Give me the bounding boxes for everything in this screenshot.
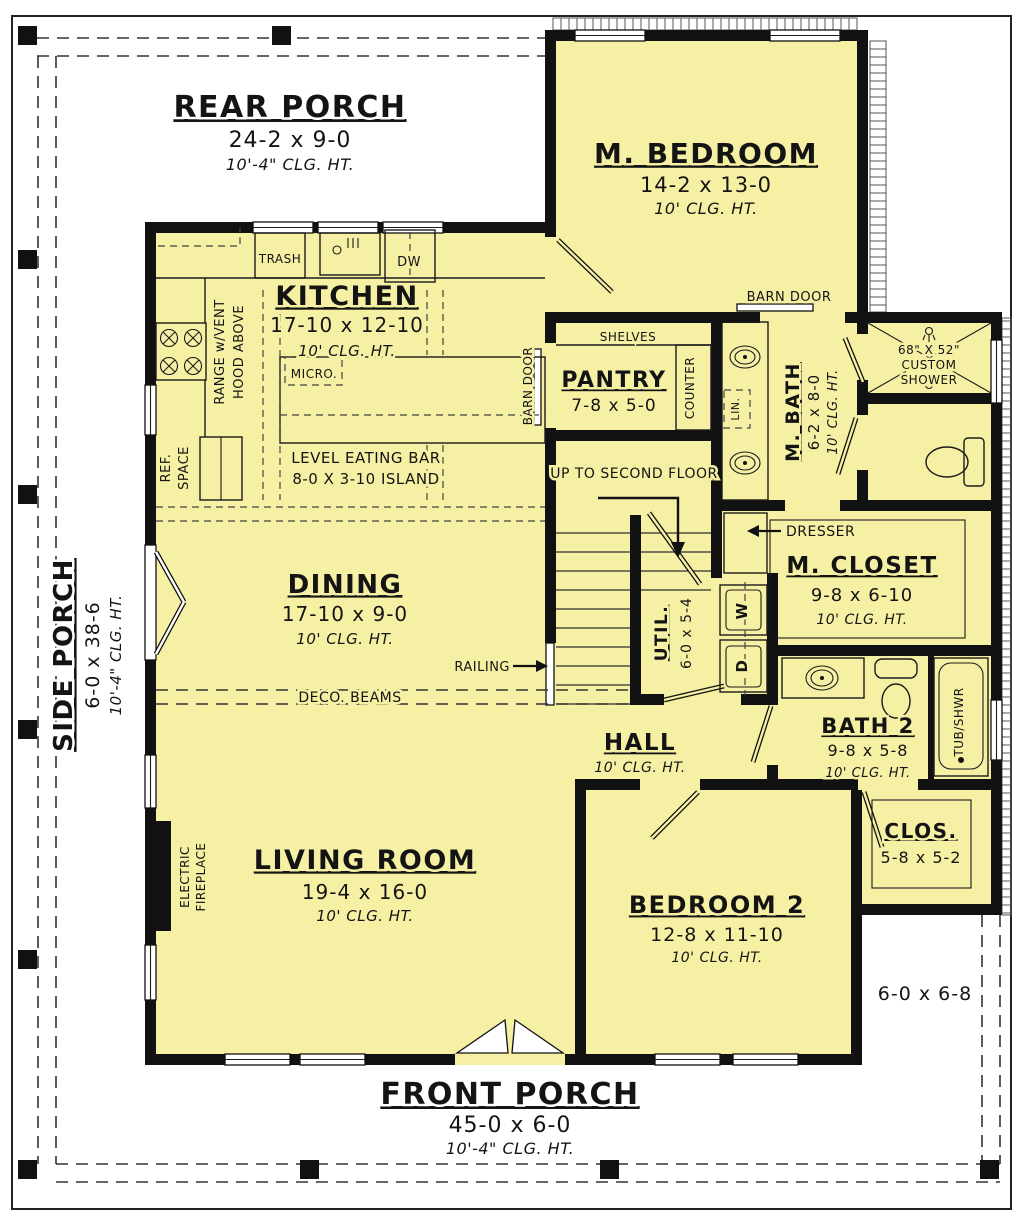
window xyxy=(145,945,156,1000)
room-clg-living: 10' CLG. HT. xyxy=(316,907,413,925)
barn-door-slab xyxy=(737,304,813,311)
label-shelves: SHELVES xyxy=(600,330,657,344)
label-island: 8-0 X 3-10 ISLAND xyxy=(292,470,439,488)
room-label-hall: HALL xyxy=(604,730,676,756)
room-dims-dining: 17-10 x 9-0 xyxy=(282,602,408,626)
label-tub: TUB/SHWR xyxy=(952,687,966,757)
room-dims-pantry: 7-8 x 5-0 xyxy=(571,396,656,416)
fireplace-notch xyxy=(156,931,171,940)
window xyxy=(383,222,443,233)
vanity-sink xyxy=(806,666,838,690)
siding-strip xyxy=(1002,318,1011,915)
label-shower1: 68" X 52" xyxy=(898,343,960,357)
label-counter: COUNTER xyxy=(683,357,697,419)
porch-post xyxy=(18,720,37,739)
barn-door-slab xyxy=(534,349,541,425)
room-dims-rear-porch: 24-2 x 9-0 xyxy=(229,128,352,153)
porch-post xyxy=(18,26,37,45)
label-range2: HOOD ABOVE xyxy=(232,305,247,399)
room-label-kitchen: KITCHEN xyxy=(275,281,418,312)
nook-dims: 6-0 x 6-8 xyxy=(878,983,972,1005)
room-clg-m-closet: 10' CLG. HT. xyxy=(816,612,907,628)
room-dims-bath2: 9-8 x 5-8 xyxy=(828,741,909,760)
label-shower2: CUSTOM xyxy=(902,358,957,372)
label-ref1: REF. xyxy=(159,454,174,483)
porch-post xyxy=(18,485,37,504)
label-micro: MICRO. xyxy=(291,367,337,381)
window xyxy=(225,1054,290,1065)
window xyxy=(991,340,1002,403)
room-dims-living: 19-4 x 16-0 xyxy=(302,880,428,904)
side-door-opening xyxy=(145,545,156,660)
stair-treads xyxy=(556,515,630,705)
room-clg-side-porch: 10'-4" CLG. HT. xyxy=(107,595,125,716)
label-trash: TRASH xyxy=(258,252,302,266)
room-label-pantry: PANTRY xyxy=(561,368,666,393)
room-dims-bedroom2: 12-8 x 11-10 xyxy=(650,924,784,946)
room-label-clos2: CLOS. xyxy=(884,819,957,843)
porch-post xyxy=(600,1160,619,1179)
room-clg-dining: 10' CLG. HT. xyxy=(296,630,393,648)
room-dims-clos2: 5-8 x 5-2 xyxy=(881,848,962,867)
window xyxy=(991,700,1002,760)
window xyxy=(655,1054,720,1065)
label-dryer: D xyxy=(733,660,751,673)
label-eating-bar: LEVEL EATING BAR xyxy=(291,449,440,467)
floor-plan-svg: REAR PORCH 24-2 x 9-0 10'-4" CLG. HT. FR… xyxy=(0,0,1024,1216)
room-clg-m-bedroom: 10' CLG. HT. xyxy=(654,199,758,218)
label-fireplace2: FIREPLACE xyxy=(194,842,208,911)
room-dims-m-closet: 9-8 x 6-10 xyxy=(811,585,913,606)
window xyxy=(145,385,156,435)
room-label-rear-porch: REAR PORCH xyxy=(173,90,406,125)
window xyxy=(253,222,313,233)
room-label-side-porch: SIDE PORCH xyxy=(49,558,79,752)
label-dw: DW xyxy=(397,255,421,270)
label-railing: RAILING xyxy=(454,660,510,675)
label-stairs: UP TO SECOND FLOOR xyxy=(550,466,718,482)
room-dims-m-bedroom: 14-2 x 13-0 xyxy=(640,173,772,197)
room-clg-m-bath: 10' CLG. HT. xyxy=(826,369,841,454)
room-clg-bath2: 10' CLG. HT. xyxy=(825,766,910,781)
label-fireplace1: ELECTRIC xyxy=(178,846,192,908)
porch-post xyxy=(18,250,37,269)
room-label-dining: DINING xyxy=(288,570,403,600)
room-dims-side-porch: 6-0 x 38-6 xyxy=(82,601,104,708)
room-label-m-bedroom: M. BEDROOM xyxy=(594,137,818,170)
room-label-m-bath: M. BATH xyxy=(782,362,804,462)
room-clg-hall: 10' CLG. HT. xyxy=(594,760,685,776)
stair-railing xyxy=(546,643,554,705)
window xyxy=(733,1054,798,1065)
label-barn-door-side: BARN DOOR xyxy=(521,347,535,426)
window xyxy=(318,222,378,233)
label-barn-door-top: BARN DOOR xyxy=(747,290,832,305)
label-lin: LIN. xyxy=(729,397,742,420)
label-deco-beams: DECO. BEAMS xyxy=(298,690,401,706)
label-washer: W xyxy=(733,602,751,619)
room-dims-kitchen: 17-10 x 12-10 xyxy=(270,313,424,337)
room-label-util: UTIL. xyxy=(652,605,672,662)
porch-post xyxy=(272,26,291,45)
porch-post xyxy=(300,1160,319,1179)
label-dresser: DRESSER xyxy=(786,524,855,540)
room-dims-util: 6-0 x 5-4 xyxy=(679,597,695,669)
siding-strip xyxy=(870,41,886,312)
room-label-front-porch: FRONT PORCH xyxy=(380,1077,639,1112)
room-label-living: LIVING ROOM xyxy=(254,845,476,876)
room-clg-rear-porch: 10'-4" CLG. HT. xyxy=(226,155,354,174)
window xyxy=(575,30,645,41)
room-dims-front-porch: 45-0 x 6-0 xyxy=(449,1113,572,1138)
porch-post xyxy=(18,1160,37,1179)
room-dims-m-bath: 6-2 x 8-0 xyxy=(805,374,823,450)
room-label-m-closet: M. CLOSET xyxy=(786,553,937,579)
fireplace-notch xyxy=(156,812,171,821)
label-shower3: SHOWER xyxy=(901,373,958,387)
porch-post xyxy=(18,950,37,969)
room-label-bath2: BATH 2 xyxy=(821,714,914,738)
siding-strip xyxy=(553,18,857,30)
room-clg-kitchen: 10' CLG. HT. xyxy=(298,342,395,360)
window xyxy=(300,1054,365,1065)
label-ref2: SPACE xyxy=(177,446,192,490)
floor-plan-page: REAR PORCH 24-2 x 9-0 10'-4" CLG. HT. FR… xyxy=(0,0,1024,1216)
porch-post xyxy=(980,1160,999,1179)
label-range1: RANGE w/VENT xyxy=(213,299,228,404)
window xyxy=(770,30,840,41)
room-label-bedroom2: BEDROOM 2 xyxy=(629,891,805,919)
window xyxy=(145,755,156,808)
room-clg-front-porch: 10'-4" CLG. HT. xyxy=(446,1139,574,1158)
room-clg-bedroom2: 10' CLG. HT. xyxy=(671,950,762,966)
